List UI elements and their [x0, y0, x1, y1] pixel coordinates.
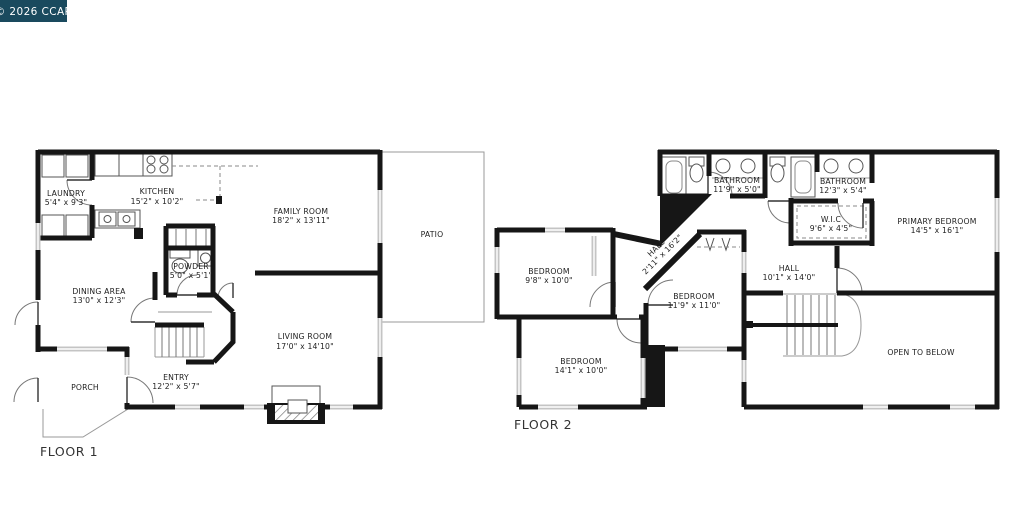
kitchen-dims: 15'2" x 10'2" — [131, 197, 184, 206]
powder-dims: 5'0" x 5'1" — [170, 271, 213, 280]
floor2-title: FLOOR 2 — [514, 417, 572, 432]
bedroom3-label: BEDROOM — [560, 357, 602, 366]
living-room-dims: 17'0" x 14'10" — [276, 342, 334, 351]
wic-dims: 9'6" x 4'5" — [810, 224, 853, 233]
sink-icon — [716, 159, 730, 173]
primary-bedroom-label: PRIMARY BEDROOM — [897, 217, 976, 226]
hall-corner-wall — [660, 194, 712, 246]
floorplan-page: LAUNDRY 5'4" x 9'3" KITCHEN 15'2" x 10'2… — [0, 0, 1024, 522]
bedroom2-dims: 11'9" x 11'0" — [668, 301, 721, 310]
entry-dims: 12'2" x 5'7" — [152, 382, 200, 391]
floor1-title: FLOOR 1 — [40, 444, 98, 459]
hall-diagonal-label-group: HALL 2'11" x 16'2" — [634, 226, 684, 276]
dryer-icon — [66, 155, 88, 177]
powder-toilet-icon — [170, 250, 190, 258]
stove-icon — [143, 153, 172, 176]
bedroom1-label: BEDROOM — [528, 267, 570, 276]
closet-hanger-icon — [706, 238, 730, 250]
bathroom2-dims: 12'3" x 5'4" — [819, 186, 867, 195]
fireplace-icon — [267, 386, 325, 424]
washer-icon — [42, 155, 64, 177]
family-room-label: FAMILY ROOM — [274, 207, 329, 216]
bathroom1-dims: 11'9" x 5'0" — [713, 185, 761, 194]
bathroom2-label: BATHROOM — [820, 177, 866, 186]
bathroom1-label: BATHROOM — [714, 176, 760, 185]
sink-icon — [741, 159, 755, 173]
door-arc-layer — [14, 172, 863, 403]
wic-label: W.I.C — [821, 215, 841, 224]
floorplan-canvas: LAUNDRY 5'4" x 9'3" KITCHEN 15'2" x 10'2… — [0, 0, 1024, 522]
laundry-dims: 5'4" x 9'3" — [45, 198, 88, 207]
living-room-label: LIVING ROOM — [278, 332, 333, 341]
powder-label: POWDER — [173, 262, 209, 271]
patio-label: PATIO — [421, 230, 444, 239]
primary-bedroom-dims: 14'5" x 16'1" — [911, 226, 964, 235]
badge-text: © 2026 CCAR — [0, 6, 72, 18]
wall-column — [645, 345, 665, 407]
sink-icon — [849, 159, 863, 173]
hall-dims: 10'1" x 14'0" — [763, 273, 816, 282]
sink-icon — [824, 159, 838, 173]
bedroom2-label: BEDROOM — [673, 292, 715, 301]
bedroom1-dims: 9'8" x 10'0" — [525, 276, 573, 285]
dining-label: DINING AREA — [72, 287, 126, 296]
bedroom3-dims: 14'1" x 10'0" — [555, 366, 608, 375]
kitchen-label: KITCHEN — [140, 187, 175, 196]
copyright-badge: © 2026 CCAR — [0, 0, 72, 22]
hall-label: HALL — [779, 264, 800, 273]
dining-dims: 13'0" x 12'3" — [73, 296, 126, 305]
laundry-label: LAUNDRY — [47, 189, 85, 198]
open-to-below-label: OPEN TO BELOW — [887, 348, 955, 357]
porch-label: PORCH — [71, 383, 99, 392]
entry-label: ENTRY — [163, 373, 189, 382]
family-room-dims: 18'2" x 13'11" — [272, 216, 330, 225]
